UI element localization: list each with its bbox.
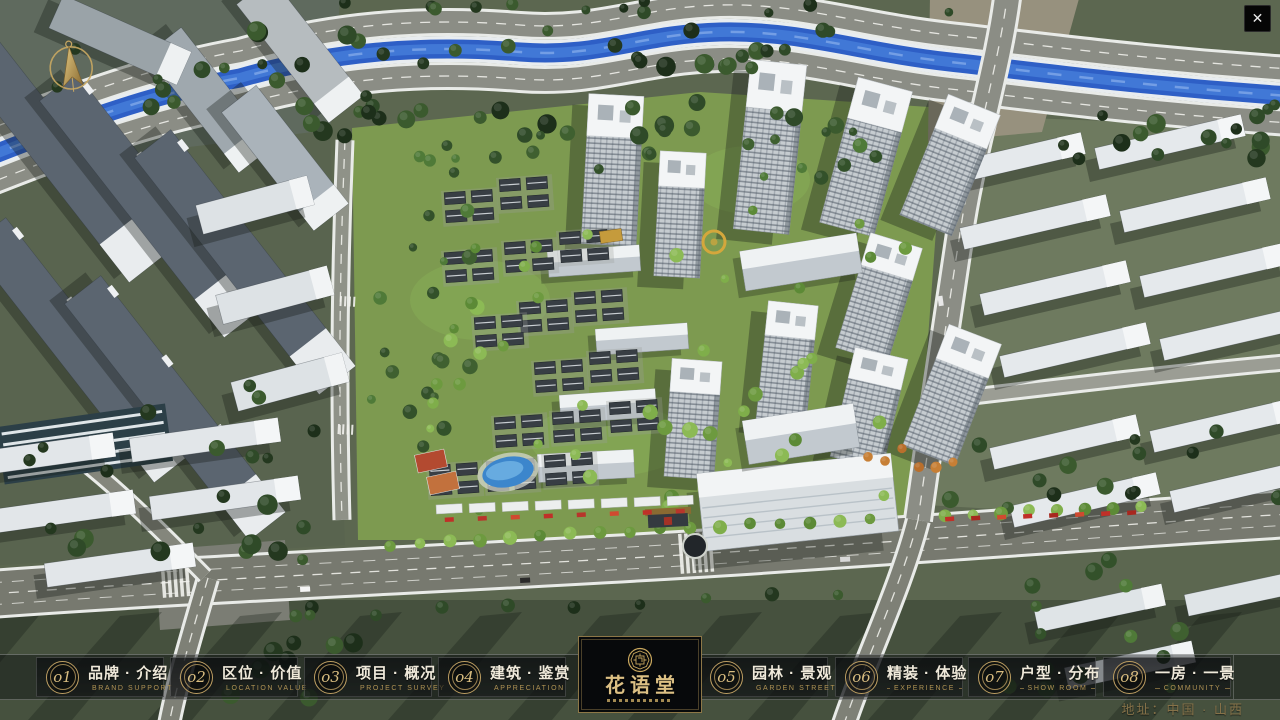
nav-item-title: 一房 · 一景: [1155, 662, 1230, 683]
brand-seal-icon: [627, 647, 653, 673]
site-aerial-map[interactable]: [0, 0, 1280, 720]
nav-item-texts: 一房 · 一景 COMMUNITY: [1155, 662, 1230, 692]
project-address: 地址：中国 · 山西: [1121, 699, 1244, 718]
nav-item-number-badge: o6: [845, 661, 878, 694]
nav-item-texts: 品牌 · 介绍 BRAND SUPPORT: [88, 662, 163, 692]
close-button[interactable]: ✕: [1244, 5, 1271, 32]
nav-item-number-badge: o2: [180, 661, 213, 694]
nav-item-o2[interactable]: o2 区位 · 价值 LOCATION VALUE: [170, 657, 298, 697]
nav-item-o8[interactable]: o8 一房 · 一景 COMMUNITY: [1103, 657, 1231, 697]
nav-item-subtitle: COMMUNITY: [1155, 685, 1230, 692]
nav-item-title: 精装 · 体验: [887, 662, 962, 683]
brand-name: 花语堂: [600, 675, 680, 695]
brand-caption-text: [607, 699, 673, 702]
nav-item-o7[interactable]: o7 户型 · 分布 SHOW ROOM: [968, 657, 1096, 697]
nav-item-number-badge: o4: [448, 661, 481, 694]
nav-item-texts: 项目 · 概况 PROJECT SURVEY: [356, 662, 431, 692]
nav-item-subtitle: APPRECIATION: [490, 685, 565, 692]
nav-item-number-badge: o8: [1113, 661, 1146, 694]
nav-item-subtitle: BRAND SUPPORT: [88, 685, 163, 692]
nav-item-subtitle: EXPERIENCE: [887, 685, 962, 692]
nav-item-texts: 区位 · 价值 LOCATION VALUE: [222, 662, 297, 692]
nav-item-subtitle: PROJECT SURVEY: [356, 685, 431, 692]
nav-item-number-badge: o5: [710, 661, 743, 694]
nav-item-subtitle: GARDEN STREET: [752, 685, 827, 692]
nav-item-texts: 园林 · 景观 GARDEN STREET: [752, 662, 827, 692]
nav-item-number-badge: o7: [978, 661, 1011, 694]
nav-item-number-badge: o3: [314, 661, 347, 694]
nav-item-title: 项目 · 概况: [356, 662, 431, 683]
brand-logo-panel[interactable]: 花语堂: [578, 636, 702, 713]
nav-item-title: 区位 · 价值: [222, 662, 297, 683]
nav-item-title: 品牌 · 介绍: [88, 662, 163, 683]
nav-item-o5[interactable]: o5 园林 · 景观 GARDEN STREET: [700, 657, 828, 697]
nav-item-texts: 精装 · 体验 EXPERIENCE: [887, 662, 962, 692]
nav-item-o3[interactable]: o3 项目 · 概况 PROJECT SURVEY: [304, 657, 432, 697]
nav-item-title: 户型 · 分布: [1020, 662, 1095, 683]
north-compass-icon: [40, 30, 102, 96]
nav-item-o4[interactable]: o4 建筑 · 鉴赏 APPRECIATION: [438, 657, 566, 697]
presentation-screen: ✕ o1 品牌 · 介绍 BRAND SUPPORT o2 区位 · 价值 LO…: [0, 0, 1280, 720]
nav-item-title: 建筑 · 鉴赏: [490, 662, 565, 683]
nav-item-texts: 户型 · 分布 SHOW ROOM: [1020, 662, 1095, 692]
close-icon: ✕: [1252, 10, 1264, 27]
nav-item-subtitle: SHOW ROOM: [1020, 685, 1095, 692]
nav-item-title: 园林 · 景观: [752, 662, 827, 683]
nav-item-number-badge: o1: [46, 661, 79, 694]
nav-item-texts: 建筑 · 鉴赏 APPRECIATION: [490, 662, 565, 692]
nav-item-o6[interactable]: o6 精装 · 体验 EXPERIENCE: [835, 657, 963, 697]
nav-item-o1[interactable]: o1 品牌 · 介绍 BRAND SUPPORT: [36, 657, 164, 697]
nav-item-subtitle: LOCATION VALUE: [222, 685, 297, 692]
